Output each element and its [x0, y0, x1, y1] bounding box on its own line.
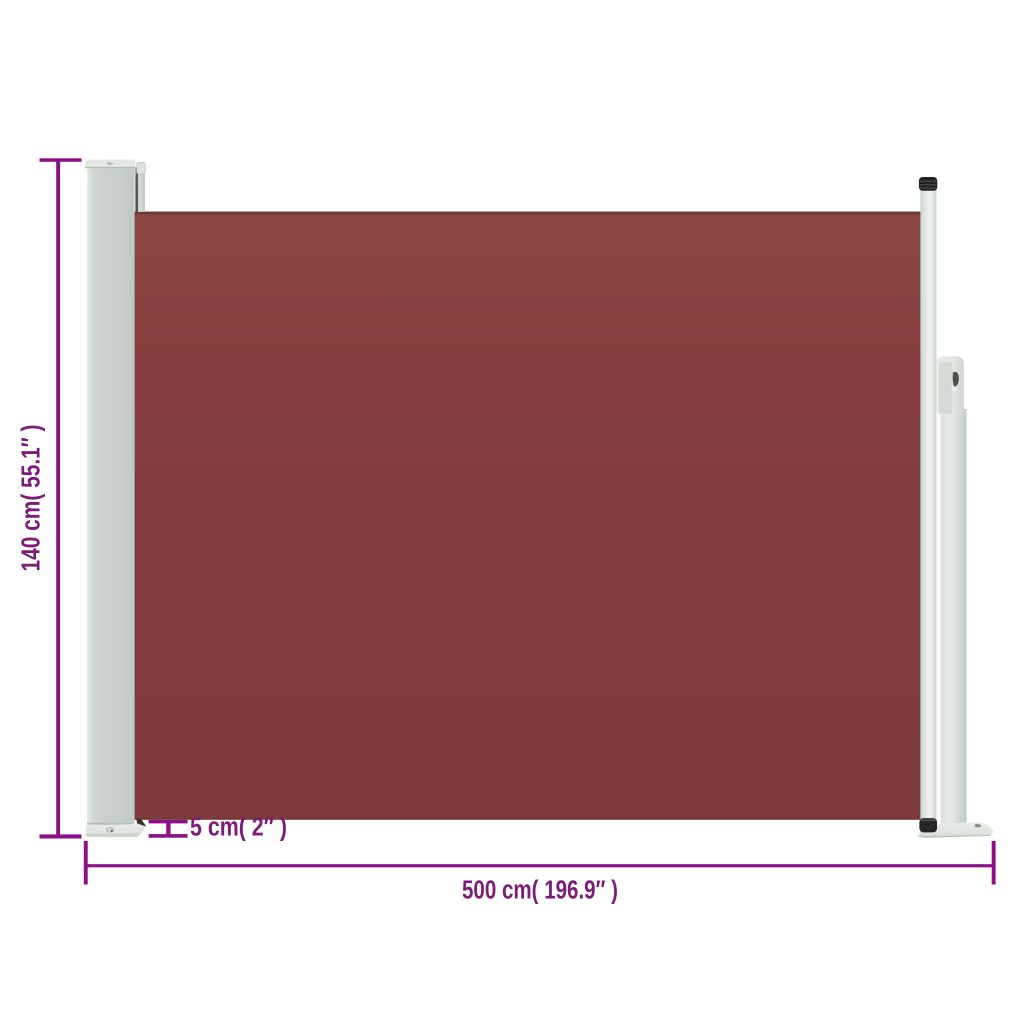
svg-text:500 cm( 196.9″ ): 500 cm( 196.9″ )	[462, 877, 618, 905]
svg-text:5 cm( 2″ ): 5 cm( 2″ )	[190, 814, 287, 842]
svg-text:140 cm( 55.1″ ): 140 cm( 55.1″ )	[17, 425, 45, 572]
